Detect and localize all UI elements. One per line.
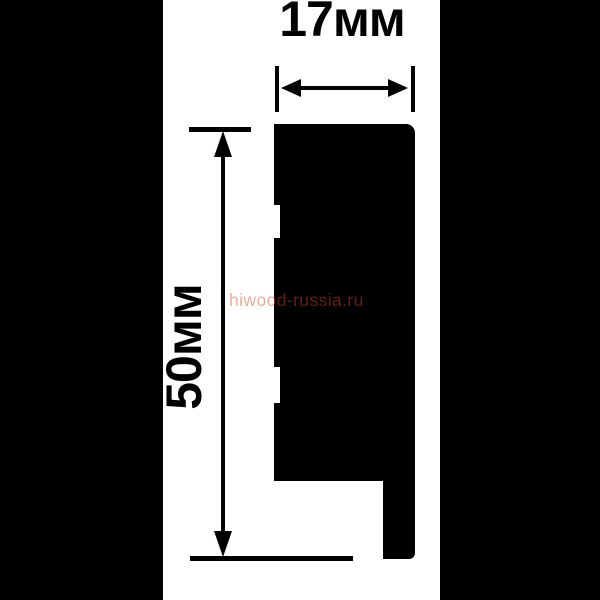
arrow-down-icon xyxy=(214,531,232,557)
height-dimension-line xyxy=(221,138,225,540)
watermark-text: hiwood-russia.ru xyxy=(229,291,364,309)
width-extension-line-left xyxy=(275,66,279,112)
arrow-right-icon xyxy=(388,79,408,97)
drawing-canvas: 17мм 50мм hiwood-russia.ru xyxy=(0,0,600,600)
height-dimension-label: 50мм xyxy=(159,284,209,410)
width-dimension-label: 17мм xyxy=(279,0,405,44)
letterbox-left-bar xyxy=(0,0,163,600)
arrow-up-icon xyxy=(214,131,232,157)
arrow-left-icon xyxy=(281,79,301,97)
width-dimension-line xyxy=(292,86,398,90)
width-extension-line-right xyxy=(411,66,415,112)
profile-clip-notch-upper xyxy=(273,205,280,238)
profile-foot xyxy=(383,475,415,559)
letterbox-right-bar xyxy=(440,0,600,600)
profile-clip-notch-lower xyxy=(273,367,280,403)
